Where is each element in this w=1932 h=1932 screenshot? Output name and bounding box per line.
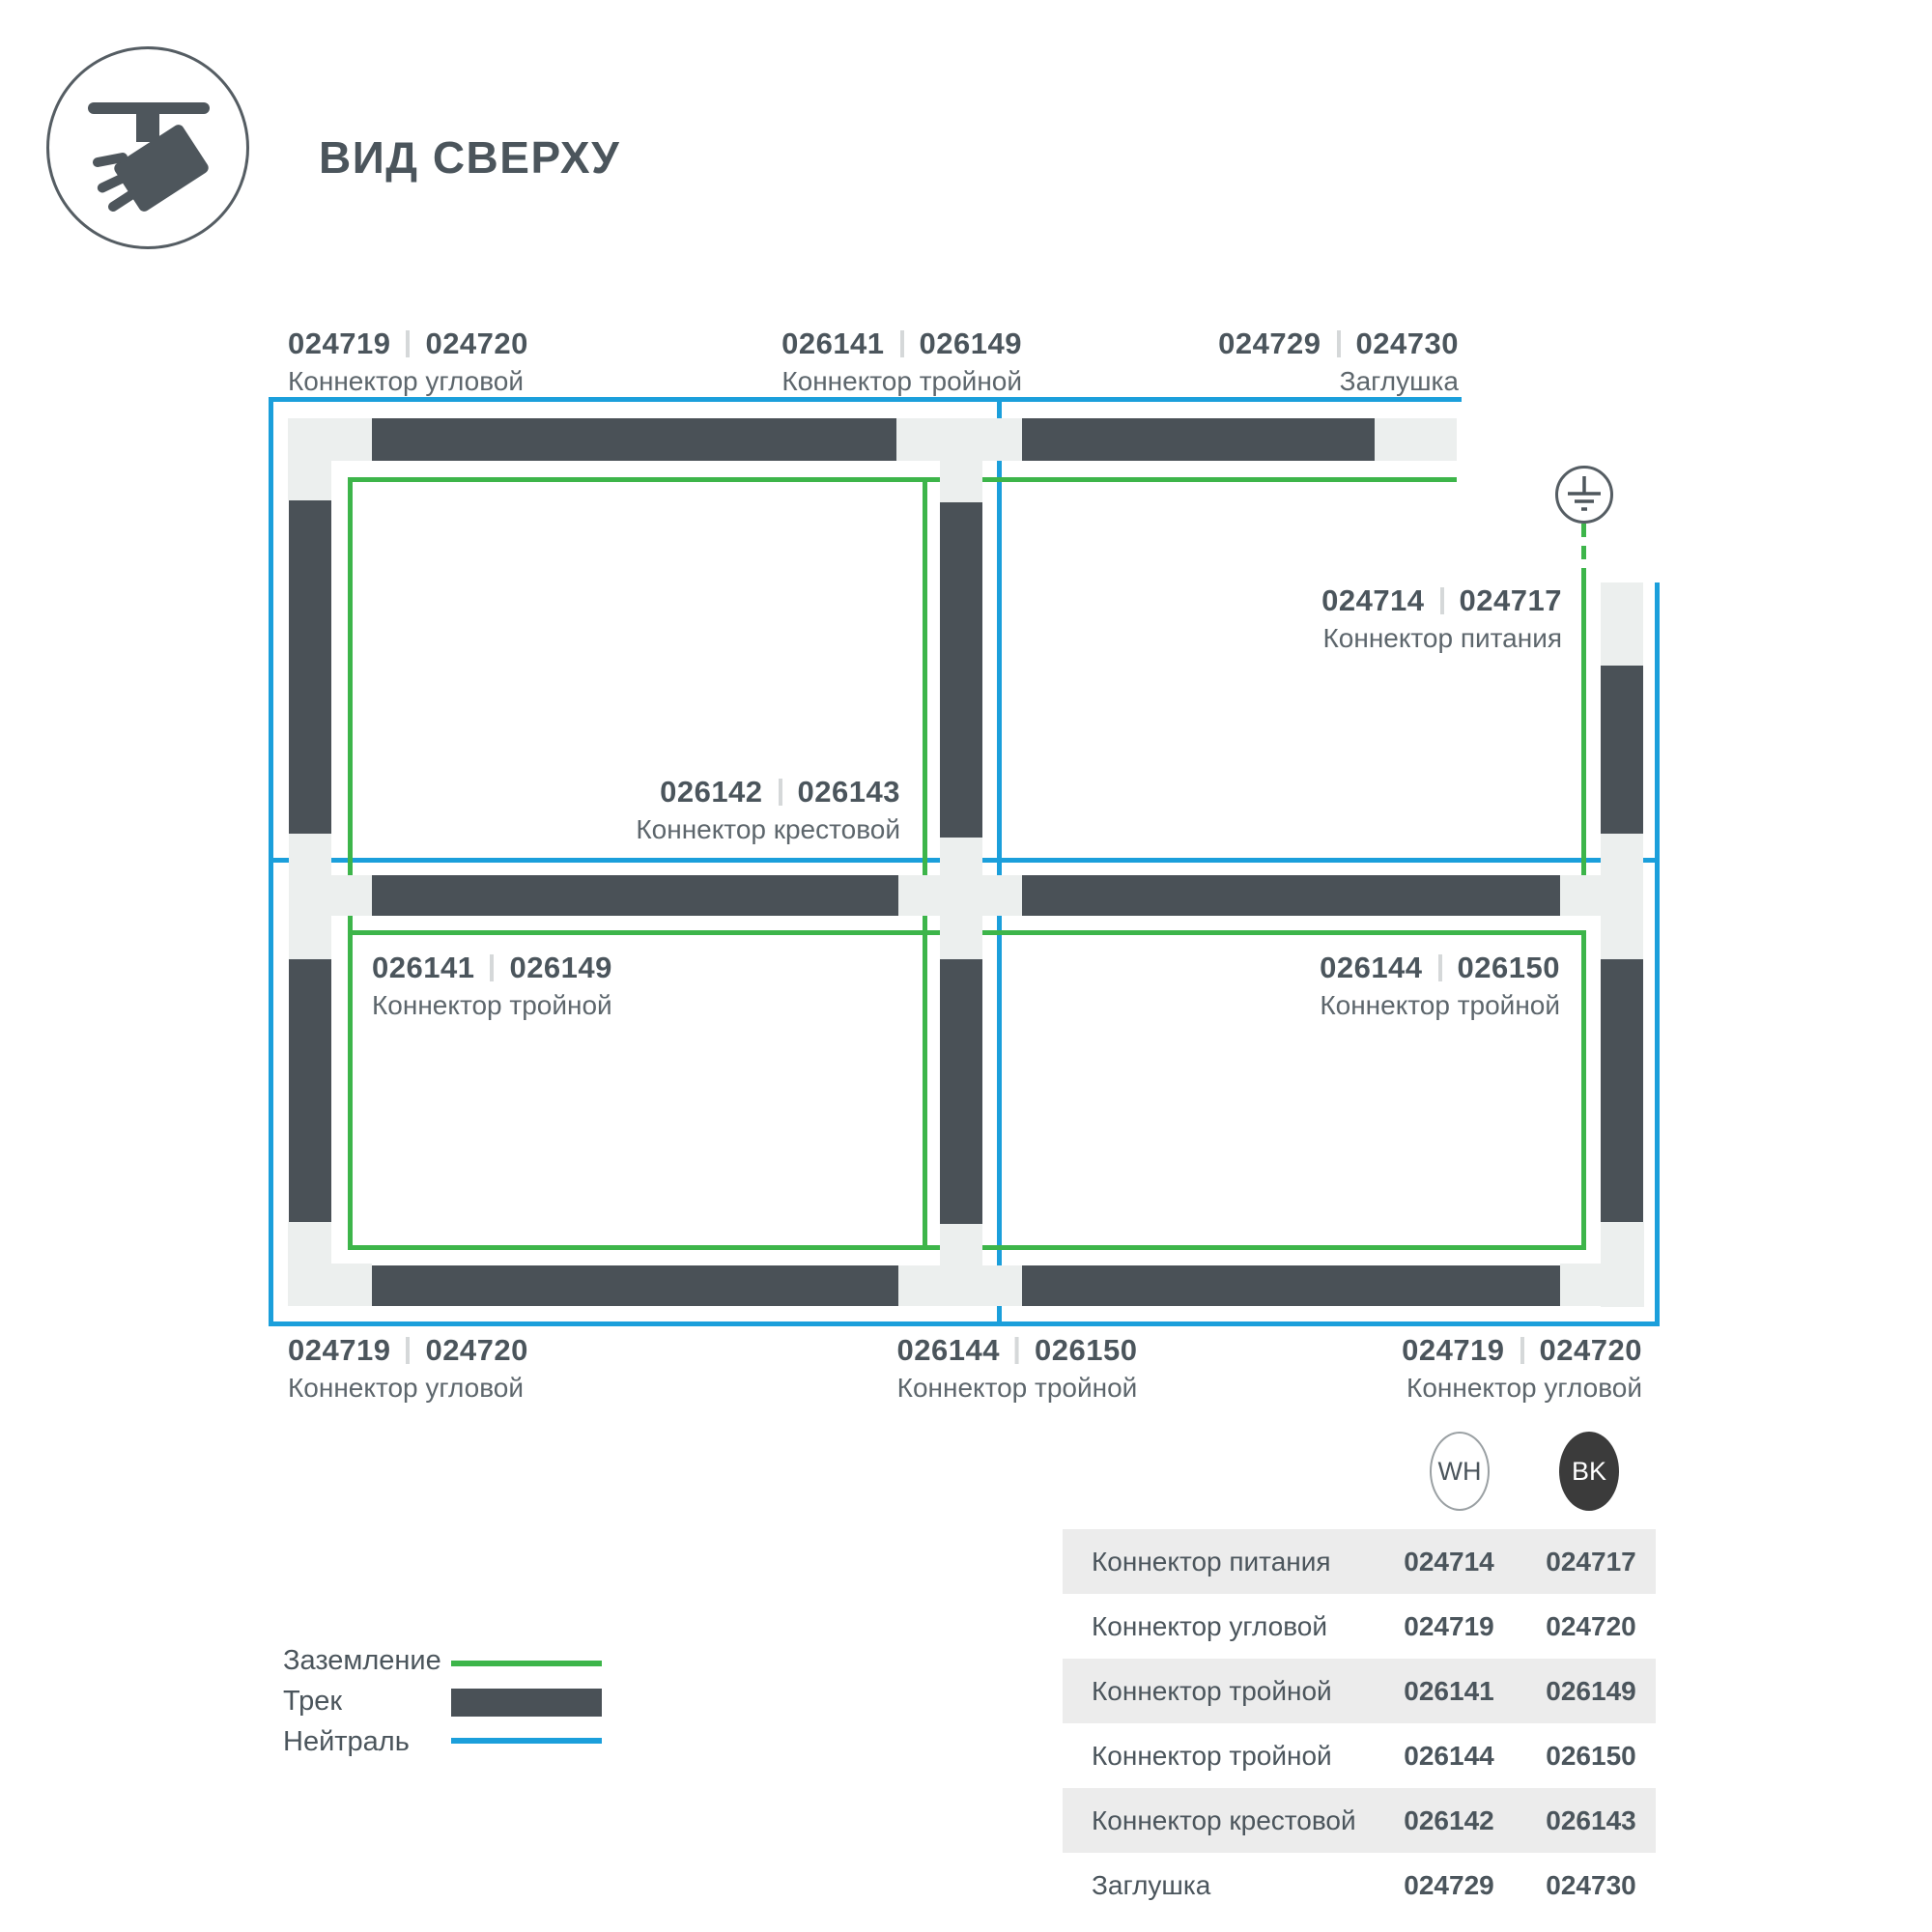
- ground-line: [348, 477, 1457, 482]
- ground-line: [1581, 930, 1586, 1250]
- triple-connector: [896, 418, 1022, 461]
- connector-label: 026144026150 Коннектор тройной: [1320, 951, 1560, 1021]
- code-divider: [1520, 1337, 1524, 1364]
- triple-connector: [898, 1265, 1022, 1306]
- corner-connector: [1560, 1264, 1644, 1306]
- code-divider: [779, 779, 782, 806]
- connector-label: 026141026149 Коннектор тройной: [781, 327, 1022, 397]
- legend-label-neutral: Нейтраль: [283, 1726, 410, 1758]
- ground-line: [348, 477, 353, 1250]
- track-segment: [1601, 665, 1643, 834]
- cross-connector: [940, 838, 982, 959]
- connector-label: 024719024720 Коннектор угловой: [1402, 1333, 1642, 1404]
- corner-connector: [288, 418, 331, 500]
- end-cap: [1375, 418, 1457, 461]
- track-segment: [372, 1265, 898, 1306]
- code-divider: [406, 1337, 410, 1364]
- triple-connector: [331, 875, 372, 916]
- track-segment: [372, 875, 898, 916]
- triple-connector: [1560, 875, 1601, 916]
- neutral-line: [270, 397, 1462, 402]
- track-segment: [289, 500, 331, 834]
- neutral-line: [997, 397, 1002, 1326]
- corner-connector: [288, 1264, 372, 1306]
- track-segment: [1022, 418, 1375, 461]
- track-segment: [940, 501, 982, 838]
- track-light-top-view-icon: [46, 46, 249, 249]
- ground-line-swatch: [451, 1661, 602, 1666]
- connector-label: 026144026150 Коннектор тройной: [897, 1333, 1138, 1404]
- triple-connector: [1601, 834, 1643, 959]
- connector-label: 026142026143 Коннектор крестовой: [636, 775, 900, 845]
- connector-label: 024719024720 Коннектор угловой: [288, 1333, 528, 1404]
- neutral-line-swatch: [451, 1738, 602, 1744]
- parts-table-rows: Коннектор питания024714024717Коннектор у…: [1063, 1529, 1656, 1918]
- code-divider: [490, 954, 494, 981]
- track-segment: [372, 418, 896, 461]
- table-row: Коннектор питания024714024717: [1063, 1529, 1656, 1594]
- code-divider: [1438, 954, 1442, 981]
- legend-label-ground: Заземление: [283, 1645, 441, 1677]
- connector-label: 024729024730 Заглушка: [1218, 327, 1459, 397]
- track-segment: [1601, 959, 1643, 1222]
- track-segment: [1022, 875, 1560, 916]
- triple-connector: [940, 461, 982, 502]
- track-segment: [289, 959, 331, 1222]
- table-row: Коннектор крестовой026142026143: [1063, 1788, 1656, 1853]
- track-segment: [940, 959, 982, 1224]
- earth-ground-icon: [1555, 466, 1613, 524]
- table-row: Коннектор угловой024719024720: [1063, 1594, 1656, 1659]
- code-divider: [1337, 330, 1341, 357]
- table-row: Коннектор тройной026141026149: [1063, 1659, 1656, 1723]
- code-divider: [406, 330, 410, 357]
- triple-connector: [940, 1224, 982, 1266]
- code-divider: [1440, 587, 1444, 614]
- power-connector: [1601, 582, 1643, 666]
- parts-table: Коннектор питания024714024717Коннектор у…: [1063, 1529, 1656, 1918]
- connector-label: 024719024720 Коннектор угловой: [288, 327, 528, 397]
- ground-line: [923, 477, 927, 1250]
- connector-label: 024714024717 Коннектор питания: [1321, 583, 1562, 654]
- code-divider: [1015, 1337, 1019, 1364]
- page-title: ВИД СВЕРХУ: [319, 131, 620, 184]
- color-badge-black: BK: [1559, 1432, 1619, 1511]
- table-row: Коннектор тройной026144026150: [1063, 1723, 1656, 1788]
- neutral-line: [1655, 582, 1660, 1326]
- connector-label: 026141026149 Коннектор тройной: [372, 951, 612, 1021]
- table-row: Заглушка024729024730: [1063, 1853, 1656, 1918]
- color-badge-white: WH: [1430, 1432, 1490, 1511]
- ground-dashed-line: [1581, 524, 1586, 580]
- ground-line: [1581, 580, 1586, 878]
- triple-connector: [289, 834, 331, 959]
- track-swatch: [451, 1689, 602, 1717]
- legend-label-track: Трек: [283, 1686, 342, 1718]
- track-segment: [1022, 1265, 1560, 1306]
- code-divider: [900, 330, 904, 357]
- neutral-line: [269, 1321, 1660, 1326]
